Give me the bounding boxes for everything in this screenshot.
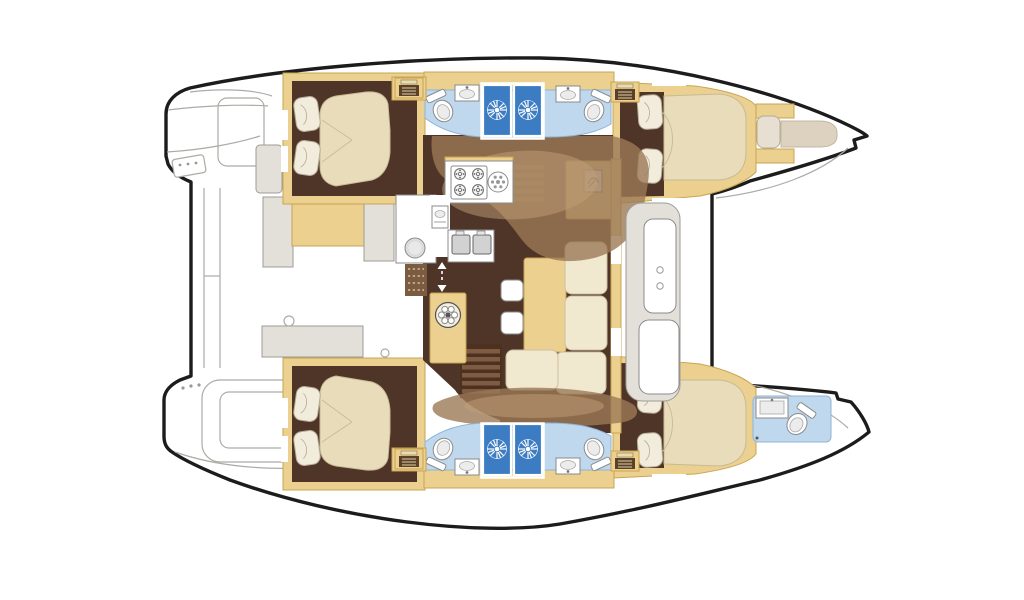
hull-window [652,80,686,86]
salon-window [611,328,621,356]
double-berth-mattress [664,94,746,180]
catamaran-floor-plan [0,0,1024,600]
cockpit-table [262,326,363,357]
pillow [293,139,321,176]
companionway-hatch-icon [611,451,639,471]
cockpit-bench-seat [292,202,364,246]
washbasin [455,85,479,101]
pillow [293,385,321,422]
forward-cockpit-seat [639,320,679,394]
washbasin [556,86,580,102]
cockpit-side-panel [364,195,394,261]
helm-seat [256,145,282,193]
galley-sink [473,235,491,254]
floor-plan-canvas [0,0,1024,600]
pillow [637,432,663,468]
galley-sink [452,235,470,254]
sofa-bench-cushion [506,350,558,390]
mast-post-cabinet [430,293,466,363]
washbasin [455,459,479,475]
port-bathrooms [424,72,614,139]
stool [501,312,523,334]
stool [501,280,523,301]
hull-window [281,146,288,172]
double-berth-mattress [320,376,390,470]
pillow [293,95,321,132]
hull-window [281,110,288,140]
forepeak-locker [756,149,794,163]
sofa-cushion [565,296,607,350]
single-berth-mattress [781,121,837,147]
companionway-hatch-icon [395,78,423,98]
forward-cockpit-seat [644,219,676,313]
companionway-hatch-icon [611,82,639,102]
pillow [757,116,780,148]
cockpit-bench-backrest [263,197,293,267]
sofa-corner-cushion [556,352,606,394]
washbasin [556,458,580,474]
hull-window [281,436,288,462]
pillow [637,94,663,130]
pillow [293,429,321,466]
companionway-hatch-icon [395,449,423,469]
hull-window [281,398,288,428]
starboard-bathrooms [424,423,614,488]
forward-cockpit [626,203,680,401]
hull-window [652,474,686,480]
starboard-bow-head [753,396,831,442]
double-berth-mattress [320,92,390,186]
dinette-table [524,258,566,352]
